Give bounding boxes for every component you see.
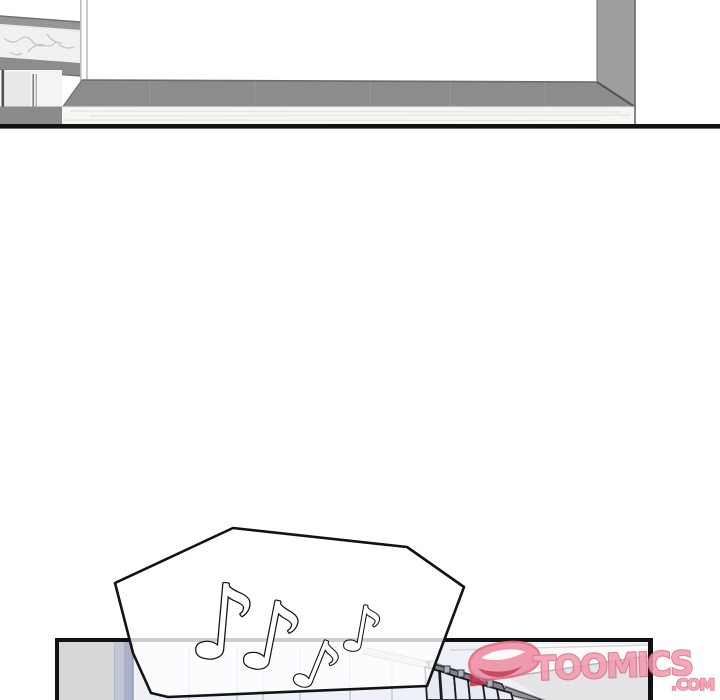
watermark-suffix-text: .COM xyxy=(671,675,714,694)
counter-leg-line2 xyxy=(36,74,37,107)
under-counter-shade xyxy=(4,72,30,107)
speech-bubble: ♪ ♪ ♪ ♪ xyxy=(95,512,480,700)
plinth-block xyxy=(0,107,62,125)
toomics-watermark: TOOMICS .COM xyxy=(450,640,720,698)
comic-page: ♪ ♪ ♪ ♪ TOOMICS .COM xyxy=(0,0,720,700)
floor xyxy=(63,80,635,107)
top-panel xyxy=(0,0,720,129)
counter-leg-left xyxy=(2,70,5,107)
watermark-brand-text: TOOMICS xyxy=(533,643,693,688)
kitchen-panel-art xyxy=(0,0,720,129)
panel-divider-line xyxy=(0,124,720,129)
toomics-mascot-icon xyxy=(466,640,542,686)
counter-leg-line xyxy=(33,74,34,107)
